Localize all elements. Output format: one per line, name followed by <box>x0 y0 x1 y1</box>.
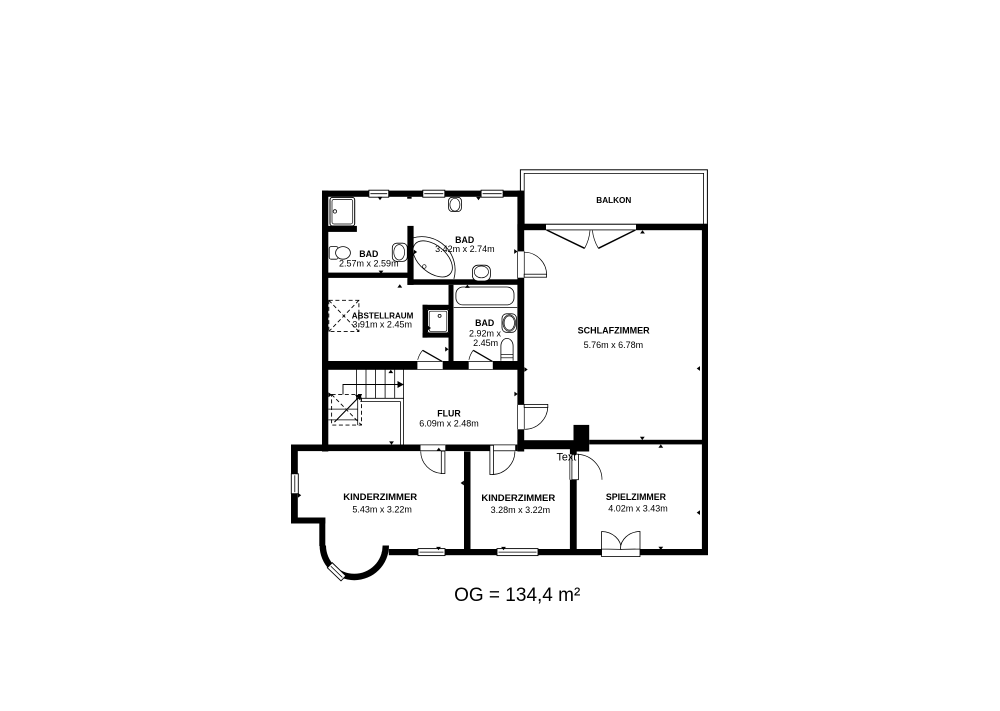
svg-text:2.57m x 2.59m: 2.57m x 2.59m <box>339 258 399 268</box>
svg-text:SCHLAFZIMMER: SCHLAFZIMMER <box>578 326 650 336</box>
svg-text:5.76m x 6.78m: 5.76m x 6.78m <box>584 340 644 350</box>
svg-text:KINDERZIMMER: KINDERZIMMER <box>343 492 417 503</box>
svg-text:Text: Text <box>557 452 577 464</box>
svg-text:6.09m x 2.48m: 6.09m x 2.48m <box>419 419 479 429</box>
svg-text:5.43m x 3.22m: 5.43m x 3.22m <box>352 505 412 515</box>
svg-text:OG = 134,4 m²: OG = 134,4 m² <box>454 585 580 606</box>
svg-text:BAD: BAD <box>475 318 494 328</box>
svg-text:SPIELZIMMER: SPIELZIMMER <box>606 492 667 502</box>
svg-text:FLUR: FLUR <box>437 408 461 418</box>
svg-text:2.45m: 2.45m <box>473 338 498 348</box>
svg-text:4.02m x 3.43m: 4.02m x 3.43m <box>608 503 668 513</box>
svg-text:3.91m x 2.45m: 3.91m x 2.45m <box>352 320 412 330</box>
svg-text:KINDERZIMMER: KINDERZIMMER <box>481 493 555 504</box>
svg-text:2.92m x: 2.92m x <box>469 328 502 338</box>
svg-text:3.42m x 2.74m: 3.42m x 2.74m <box>435 244 495 254</box>
svg-text:3.28m x 3.22m: 3.28m x 3.22m <box>491 505 551 515</box>
svg-text:BALKON: BALKON <box>596 196 631 205</box>
